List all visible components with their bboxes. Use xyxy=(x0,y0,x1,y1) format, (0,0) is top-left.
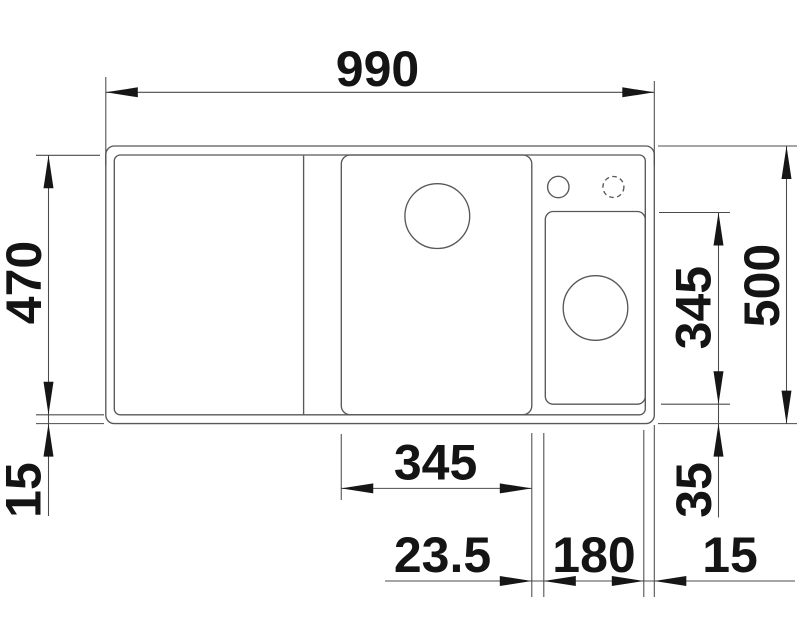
svg-text:990: 990 xyxy=(336,41,419,97)
svg-text:180: 180 xyxy=(552,527,635,583)
svg-text:15: 15 xyxy=(0,462,52,518)
svg-text:15: 15 xyxy=(702,527,758,583)
svg-text:23.5: 23.5 xyxy=(394,527,491,583)
svg-text:35: 35 xyxy=(666,462,722,518)
svg-text:345: 345 xyxy=(666,266,722,349)
svg-text:470: 470 xyxy=(0,241,52,324)
svg-text:500: 500 xyxy=(734,244,790,327)
svg-text:345: 345 xyxy=(394,435,477,491)
